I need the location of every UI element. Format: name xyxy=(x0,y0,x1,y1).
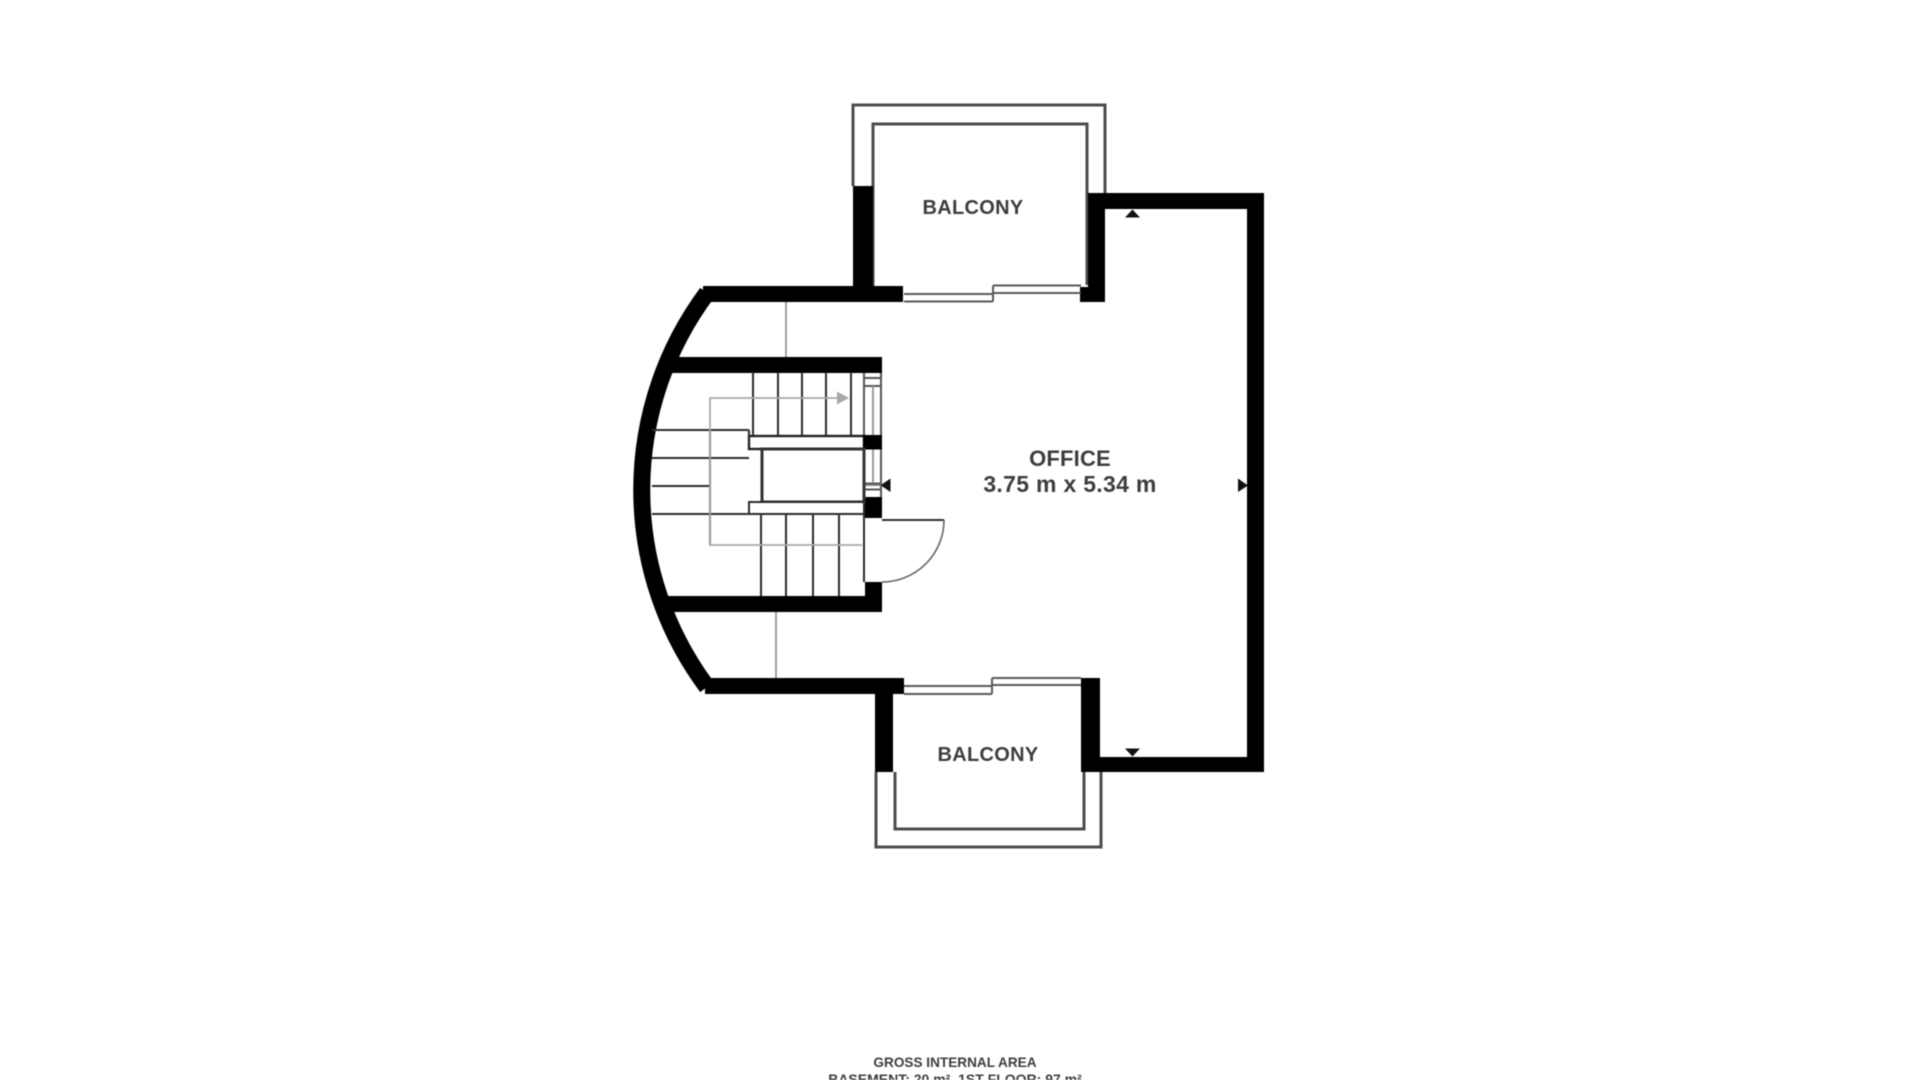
svg-text:BALCONY: BALCONY xyxy=(938,744,1039,766)
svg-text:BASEMENT: 20 m², 1ST FLOOR: 97: BASEMENT: 20 m², 1ST FLOOR: 97 m² xyxy=(828,1071,1082,1080)
svg-text:GROSS INTERNAL AREA: GROSS INTERNAL AREA xyxy=(873,1055,1036,1070)
svg-text:BALCONY: BALCONY xyxy=(923,197,1024,219)
svg-text:3.75 m x 5.34 m: 3.75 m x 5.34 m xyxy=(983,471,1156,497)
svg-text:OFFICE: OFFICE xyxy=(1029,446,1111,471)
